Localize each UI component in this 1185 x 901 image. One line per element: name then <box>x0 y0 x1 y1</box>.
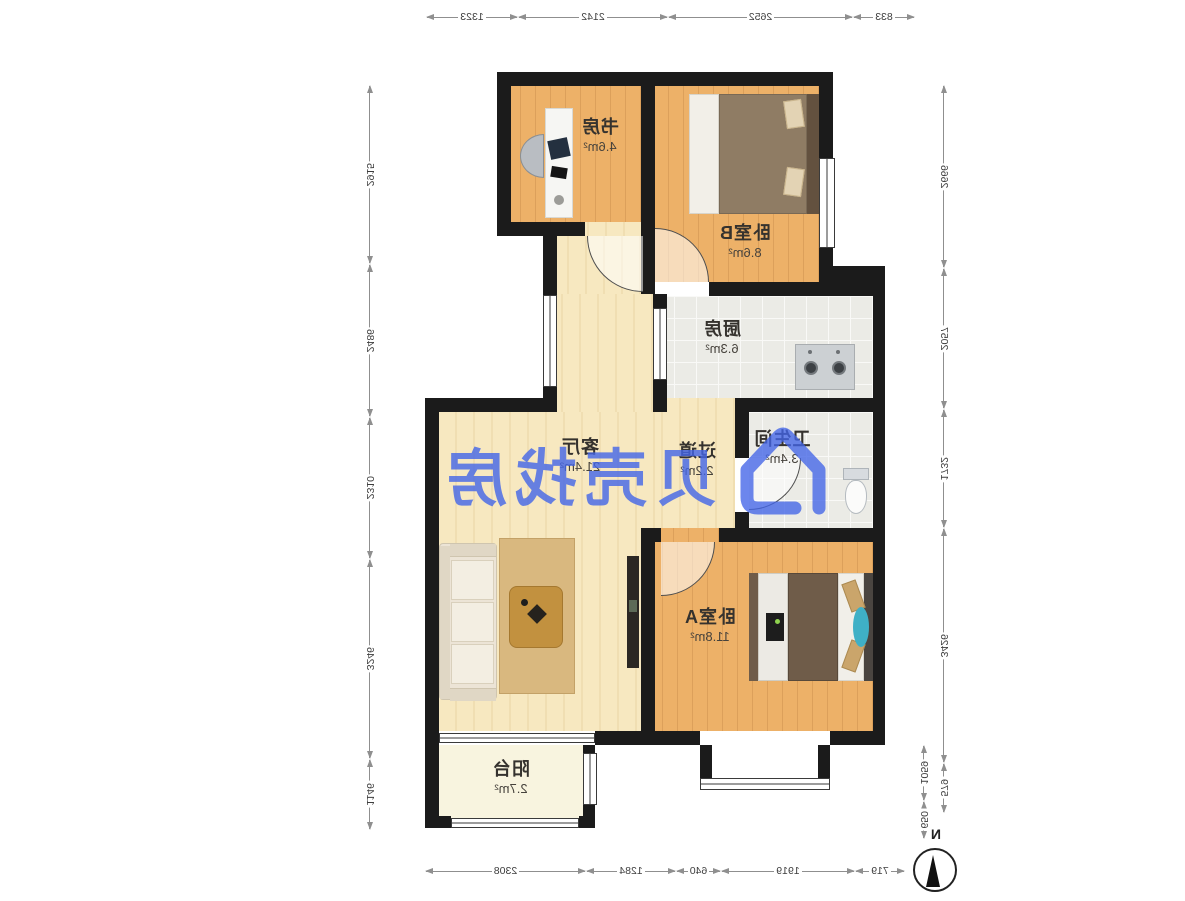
dim-value: 833 <box>873 11 895 23</box>
dim-segment-side-b: 579 <box>935 763 953 813</box>
window-balcony-front <box>451 818 579 828</box>
toilet-tank <box>843 468 869 480</box>
bed-bedroom-a <box>749 573 873 681</box>
floor-bedroom-a-doorway <box>661 528 719 542</box>
wall <box>579 816 595 828</box>
dim-segment-side-a: 2915 <box>361 85 379 264</box>
dim-value: 2310 <box>364 474 376 501</box>
wall <box>819 248 833 282</box>
dim-segment-bottom: 719 <box>855 862 905 880</box>
dim-segment-top: 2652 <box>668 8 853 26</box>
compass-icon <box>913 848 957 892</box>
room-label-bedroom-a: 卧室A 11.8m² <box>665 606 755 645</box>
wall <box>497 72 511 236</box>
table-decor <box>521 599 528 606</box>
wall <box>641 542 655 731</box>
burner <box>804 361 818 375</box>
dim-value: 1323 <box>458 11 485 23</box>
room-label-study: 书房 4.6m² <box>555 116 645 155</box>
room-label-kitchen: 厨房 6.3m² <box>677 318 767 357</box>
dim-segment-top: 833 <box>853 8 915 26</box>
desk-fan <box>554 195 564 205</box>
wall <box>830 731 885 745</box>
bench-dot <box>775 619 780 624</box>
dim-segment-side-b: 2057 <box>935 268 953 409</box>
wall <box>595 731 655 745</box>
window-bay-bedroom-a <box>700 778 830 790</box>
dim-value: 1284 <box>617 865 644 877</box>
stove-knob <box>836 350 840 354</box>
room-name: 厨房 <box>677 318 767 341</box>
stove-knob <box>808 350 812 354</box>
dim-value: 2486 <box>364 327 376 354</box>
dim-value: 2666 <box>938 163 950 190</box>
wall <box>583 745 595 753</box>
wall <box>653 294 667 308</box>
sofa-backrest <box>440 546 450 699</box>
dim-segment-side-a: 2310 <box>361 417 379 559</box>
dim-value: 3426 <box>938 632 950 659</box>
bed-pillow <box>783 167 805 197</box>
wall <box>641 528 661 542</box>
dim-segment-side-b: 2666 <box>935 85 953 268</box>
dim-value: 1146 <box>364 781 376 808</box>
coffee-table <box>509 586 563 648</box>
bed-blanket <box>788 573 838 681</box>
laptop <box>550 166 568 179</box>
sofa-armrest <box>450 544 496 557</box>
dim-value: 2057 <box>938 325 950 352</box>
dim-value: 1059 <box>918 759 930 786</box>
compass-needle <box>926 855 940 887</box>
sofa-cushion <box>451 560 494 600</box>
dim-value: 2915 <box>364 161 376 188</box>
dim-segment-bottom: 1284 <box>586 862 676 880</box>
window-bedroom-b <box>819 158 835 248</box>
dim-segment-side-a: 1146 <box>361 759 379 830</box>
wall <box>873 266 885 745</box>
wall <box>653 398 667 412</box>
room-area: 11.8m² <box>665 629 755 645</box>
room-name: 卧室A <box>665 606 755 629</box>
sofa <box>439 543 497 700</box>
wall <box>819 72 833 158</box>
wall <box>425 398 557 412</box>
sofa-cushion <box>451 602 494 642</box>
toilet <box>843 468 869 516</box>
window-balcony-slider <box>439 733 595 743</box>
table-decor <box>527 604 547 624</box>
bay-window-interior <box>712 745 818 778</box>
wall <box>497 72 833 86</box>
wall <box>653 380 667 398</box>
dim-value: 2652 <box>747 11 774 23</box>
watermark-logo-icon <box>733 412 833 522</box>
dim-value: 3246 <box>364 645 376 672</box>
floor-corridor <box>583 222 643 236</box>
bed-sheet <box>689 94 719 214</box>
sofa-cushion <box>451 644 494 684</box>
room-name: 阳台 <box>466 758 556 781</box>
dim-segment-top: 1323 <box>426 8 518 26</box>
room-name: 书房 <box>555 116 645 139</box>
stove <box>795 344 855 390</box>
room-area: 8.6m² <box>700 245 790 261</box>
dim-segment-side-a: 2486 <box>361 264 379 417</box>
wall <box>497 222 585 236</box>
dim-segment-bottom: 1919 <box>721 862 855 880</box>
dim-segment-side-a: 3246 <box>361 559 379 759</box>
dim-segment-bottom: 640 <box>676 862 721 880</box>
dim-value: 1732 <box>938 455 950 482</box>
wall <box>735 398 873 412</box>
floor-corridor <box>557 294 653 412</box>
dim-segment-side-b: 1732 <box>935 409 953 528</box>
watermark-brand-text: 贝壳找房 <box>437 428 717 518</box>
dim-value: 650 <box>918 809 930 831</box>
tv-stand <box>627 556 639 668</box>
dim-value: 640 <box>688 865 710 877</box>
wall <box>425 731 439 745</box>
wall <box>655 731 700 745</box>
dim-value: 2308 <box>492 865 519 877</box>
room-label-bedroom-b: 卧室B 8.6m² <box>700 222 790 261</box>
bed-pillow <box>783 99 805 129</box>
tv-screen <box>629 600 637 612</box>
dim-segment-bottom: 2308 <box>425 862 586 880</box>
room-area: 6.3m² <box>677 341 767 357</box>
room-area: 2.7m² <box>466 781 556 797</box>
bed-headboard <box>807 94 819 214</box>
bed-bedroom-b <box>689 94 819 214</box>
window-kitchen-pass <box>653 308 667 380</box>
dim-value: 719 <box>869 865 891 877</box>
compass-north-label: N <box>931 826 941 842</box>
floor-kitchen-doorway <box>667 398 735 412</box>
toilet-bowl <box>845 480 867 514</box>
sofa-armrest <box>450 688 496 701</box>
window-balcony-side <box>583 753 597 805</box>
bench-tv <box>766 613 784 641</box>
dim-value: 579 <box>938 777 950 799</box>
wall <box>709 282 885 296</box>
floor-plan-canvas: 书房 4.6m² 卧室B 8.6m² 厨房 6.3m² 卫生间 3.4m² 过道… <box>0 0 1185 901</box>
burner <box>832 361 846 375</box>
wall <box>641 72 655 294</box>
window-living <box>543 295 557 387</box>
room-name: 卧室B <box>700 222 790 245</box>
dim-segment-top: 2142 <box>518 8 668 26</box>
wall <box>719 528 873 542</box>
room-label-balcony: 阳台 2.7m² <box>466 758 556 797</box>
wall <box>543 236 557 295</box>
dim-segment-side-b-extra: 1059 <box>915 745 933 801</box>
dim-value: 1919 <box>774 865 801 877</box>
bed-cushion-teal <box>853 607 869 647</box>
dim-value: 2142 <box>579 11 606 23</box>
wall <box>425 745 439 828</box>
dim-segment-side-b: 3426 <box>935 528 953 763</box>
room-area: 4.6m² <box>555 139 645 155</box>
